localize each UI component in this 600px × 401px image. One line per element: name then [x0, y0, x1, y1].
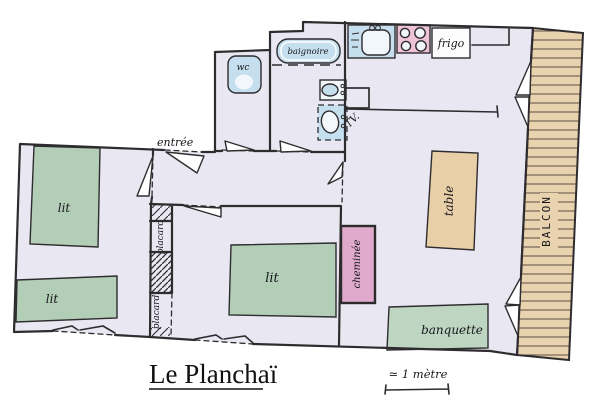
plan-title: Le Planchaï [149, 359, 278, 389]
washbasin-bowl [322, 84, 338, 96]
bed-1-label: lit [58, 201, 71, 215]
bed-3 [229, 243, 336, 317]
burner-1 [400, 28, 409, 37]
bathtub-label: baignoire [287, 47, 328, 57]
placard-hatch-top [151, 204, 172, 221]
fridge-label: frigo [437, 37, 465, 50]
banquette: banquette [387, 304, 488, 350]
burner-4 [416, 41, 426, 51]
placard-label-2: placard [152, 295, 162, 330]
balcony-label: BALCON [540, 195, 553, 247]
dining-table: table [426, 151, 478, 250]
bedroom-center: lit [229, 243, 336, 317]
fireplace: cheminée [341, 226, 375, 303]
sink-basin [362, 30, 390, 55]
placard-label-1: placard [156, 220, 166, 255]
banquette-label: banquette [421, 323, 483, 337]
bed-1 [30, 146, 100, 247]
floor-plan: BALCON placard placard lit lit lit chemi… [0, 0, 600, 401]
placard-hatch-middle [151, 252, 172, 293]
wc-bowl [235, 75, 253, 90]
table-label: table [442, 186, 456, 217]
bed-2 [16, 276, 117, 322]
burner-2 [415, 28, 425, 38]
fireplace-label: cheminée [352, 239, 363, 288]
burner-3 [401, 41, 410, 50]
wc-room: wc [228, 56, 261, 93]
bed-2-label: lit [46, 292, 59, 306]
plan-title-text: Le Planchaï [149, 359, 278, 389]
entrance-label: entrée [157, 136, 194, 149]
bed-3-label: lit [265, 271, 279, 286]
scale-label: ≃ 1 mètre [389, 367, 448, 381]
wc-label: wc [237, 63, 250, 73]
